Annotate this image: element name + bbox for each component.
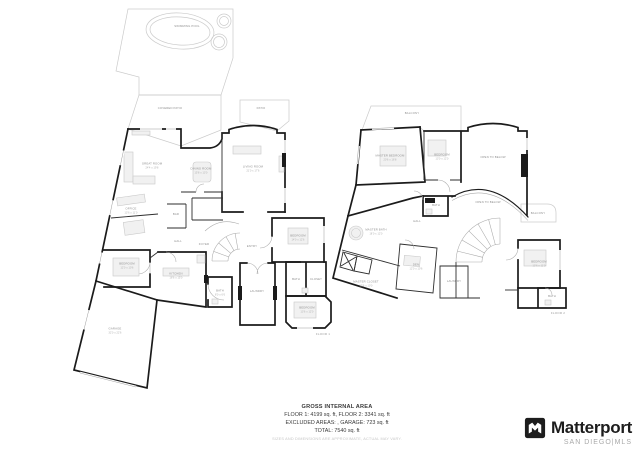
- bath-n-label: BATH: [432, 204, 440, 208]
- summary-excluded-line: EXCLUDED AREAS: , GARAGE: 723 sq. ft: [272, 420, 402, 426]
- bar-label: BAR: [173, 213, 179, 217]
- patio-label: PATIO: [257, 107, 266, 111]
- kitchen-label: KITCHEN18'6 x 15'0: [169, 273, 182, 280]
- garage-label: GARAGE32'0 x 22'6: [108, 328, 121, 335]
- master-bedroom-label: MASTER BEDROOM20'6 x 16'8: [376, 155, 405, 162]
- entry-label: ENTRY: [247, 245, 257, 249]
- area-summary: GROSS INTERNAL AREA FLOOR 1: 4199 sq. ft…: [272, 404, 402, 441]
- summary-floors-line: FLOOR 1: 4199 sq. ft, FLOOR 2: 3341 sq. …: [272, 412, 402, 418]
- floor1-tag: FLOOR 1: [316, 332, 330, 336]
- dining-room-label: DINING ROOM15'8 x 13'0: [191, 168, 212, 175]
- laundry2-label: LAUNDRY: [447, 280, 461, 284]
- master-closet-label: MASTER CLOSET15'6 x 10'0: [353, 281, 379, 288]
- matterport-m-icon: [524, 417, 546, 439]
- summary-disclaimer: SIZES AND DIMENSIONS ARE APPROXIMATE, AC…: [272, 437, 402, 441]
- office-label: OFFICE13'6 x 11'0: [125, 208, 138, 215]
- bedroom-ne-label: BEDROOM14'0 x 12'6: [290, 235, 306, 242]
- bedroom-n-label: BEDROOM13'0 x 12'0: [434, 154, 450, 161]
- bedroom-se-label: BEDROOM13'6 x 12'0: [299, 307, 315, 314]
- covered-patio-label: COVERED PATIO: [158, 107, 183, 111]
- balcony-rear-label: BALCONY: [405, 112, 419, 116]
- laundry-label: LAUNDRY: [250, 290, 264, 294]
- bath-ne-label: BATH: [292, 278, 300, 282]
- open-below-label: OPEN TO BELOW: [480, 156, 505, 160]
- summary-title: GROSS INTERNAL AREA: [272, 404, 402, 410]
- bedroom-e-label: BEDROOM13'6 x 11'0: [531, 261, 547, 268]
- hall-label: HALL: [174, 240, 182, 244]
- bedroom-w-label: BEDROOM12'0 x 10'6: [119, 263, 135, 270]
- outdoor-areas: [116, 9, 556, 222]
- floorplan-page: SWIMMING POOLCOVERED PATIOPATIOGREAT ROO…: [0, 0, 640, 452]
- mls-attribution: SAN DIEGO|MLS: [564, 439, 632, 446]
- matterport-wordmark: Matterport: [551, 418, 632, 438]
- great-room-label: GREAT ROOM24'4 x 19'8: [142, 163, 162, 170]
- living-room-label: LIVING ROOM21'0 x 17'6: [243, 166, 263, 173]
- floor2-tag: FLOOR 2: [551, 311, 565, 315]
- bath-e-label: BATH: [548, 295, 556, 299]
- closet-ne-label: CLOSET: [310, 278, 322, 282]
- master-bath-label: MASTER BATH16'0 x 12'0: [365, 229, 386, 236]
- swimming-pool-shape: [145, 11, 231, 52]
- summary-total-line: TOTAL: 7540 sq. ft: [272, 428, 402, 434]
- matterport-branding: Matterport SAN DIEGO|MLS: [524, 417, 632, 446]
- foyer-label: FOYER: [199, 243, 209, 247]
- den-label: DEN12'0 x 10'6: [409, 264, 422, 271]
- open-below-stair-label: OPEN TO BELOW: [475, 201, 500, 205]
- hall2-label: HALL: [413, 220, 421, 224]
- bath-c-label: BATH8'0 x 6'6: [215, 290, 225, 297]
- balcony-side-label: BALCONY: [531, 212, 545, 216]
- floor-plan-canvas: [0, 0, 640, 452]
- pool-label: SWIMMING POOL: [174, 25, 199, 29]
